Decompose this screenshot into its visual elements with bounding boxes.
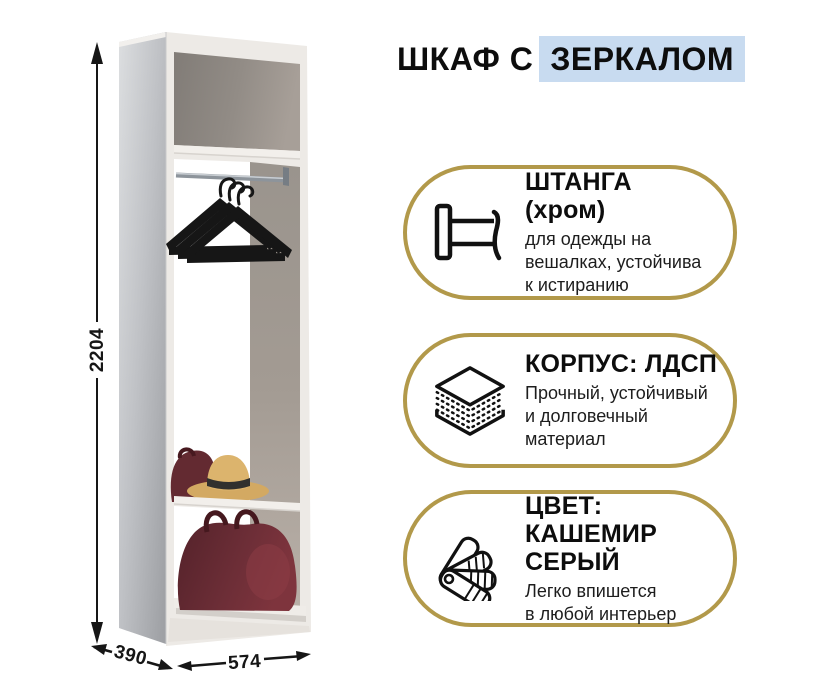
feature-title: КОРПУС: ЛДСП <box>525 350 719 378</box>
height-dimension: 2204 <box>87 42 108 644</box>
height-label: 2204 <box>87 328 108 372</box>
arrow-up-left-icon <box>91 644 107 655</box>
rod-bracket <box>283 167 289 186</box>
width-label: 574 <box>227 651 262 674</box>
feature-description: для одежды на вешалках, устойчива к исти… <box>525 228 719 297</box>
depth-label: 390 <box>112 641 150 670</box>
feature-title: ЦВЕТ: КАШЕМИР СЕРЫЙ <box>525 492 719 576</box>
wardrobe-render: 2204 390 574 <box>60 20 350 700</box>
feature-card-color: ЦВЕТ: КАШЕМИР СЕРЫЙ Легко впишется в люб… <box>403 490 737 627</box>
chipboard-layers-icon <box>427 362 513 440</box>
feature-description: Прочный, устойчивый и долговечный матери… <box>525 382 719 451</box>
page-title: ШКАФ СЗЕРКАЛОМ <box>397 36 797 82</box>
arrow-up-icon <box>91 42 103 64</box>
arrow-right-icon <box>296 651 311 661</box>
feature-card-rod: ШТАНГА (хром) для одежды на вешалках, ус… <box>403 165 737 300</box>
width-dimension: 574 <box>177 651 311 674</box>
arrow-down-icon <box>91 622 103 644</box>
depth-dimension: 390 <box>91 641 173 670</box>
infographic: ШКАФ СЗЕРКАЛОМ <box>0 0 816 700</box>
arrow-down-right-icon <box>158 659 173 670</box>
title-highlight: ЗЕРКАЛОМ <box>539 36 745 82</box>
top-compartment <box>174 52 300 151</box>
title-prefix: ШКАФ С <box>397 41 533 77</box>
arrow-left-icon <box>177 661 192 671</box>
feature-card-material: КОРПУС: ЛДСП Прочный, устойчивый и долго… <box>403 333 737 468</box>
clothes-rail-icon <box>427 200 513 266</box>
color-fan-icon <box>427 517 513 601</box>
feature-title: ШТАНГА (хром) <box>525 168 719 224</box>
feature-description: Легко впишется в любой интерьер <box>525 580 719 626</box>
mirror-side-panel <box>119 32 166 644</box>
